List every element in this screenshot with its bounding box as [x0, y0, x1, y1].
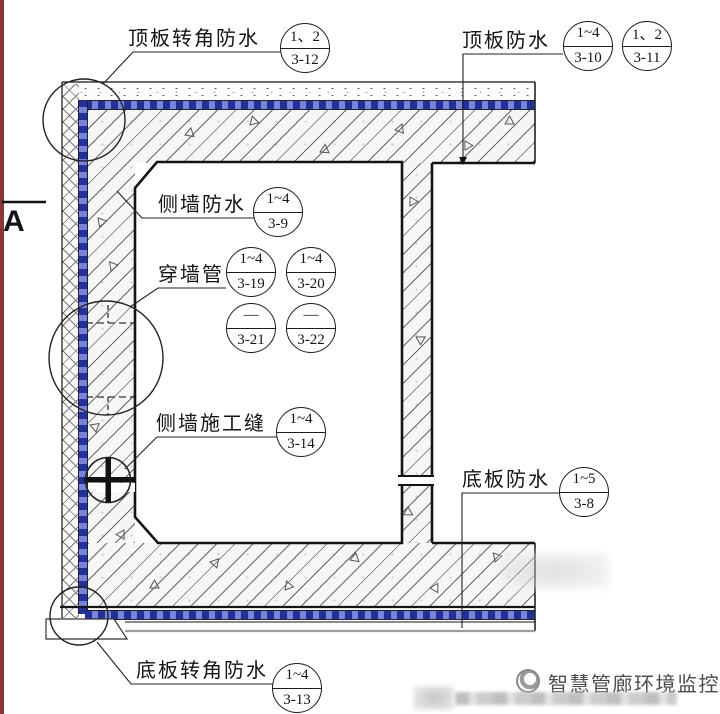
label-through-wall-pipe: 穿墙管: [158, 263, 224, 287]
left-edge-red-strip: [0, 0, 4, 714]
label-floor-waterproofing: 底板防水: [462, 468, 550, 492]
left-wall-concrete: [88, 110, 135, 607]
callout-3-11: 1、2 3-11: [622, 21, 672, 71]
callout-3-9: 1~4 3-9: [253, 187, 303, 237]
callout-3-10: 1~4 3-10: [563, 21, 613, 71]
label-side-wall-waterproofing: 侧墙防水: [158, 193, 246, 217]
waterproofing-detail-drawing: 顶板转角防水 顶板防水 侧墙防水 穿墙管 侧墙施工缝 底板防水 底板转角防水 1…: [0, 0, 720, 714]
callout-3-22: — 3-22: [286, 303, 336, 353]
wall-protection-board: [62, 84, 79, 618]
callout-3-14: 1~4 3-14: [276, 407, 326, 457]
blurred-watermark-line: [455, 692, 677, 705]
top-protection-layer: [66, 84, 535, 100]
label-roof-waterproofing: 顶板防水: [462, 29, 550, 53]
top-slab-concrete: [88, 110, 535, 163]
callout-3-21: — 3-21: [226, 303, 276, 353]
callout-3-19: 1~4 3-19: [226, 247, 276, 297]
wall-membrane-blue: [78, 100, 88, 614]
label-floor-corner-waterproofing: 底板转角防水: [136, 659, 268, 683]
callout-3-13: 1~4 3-13: [272, 663, 322, 713]
callout-3-12: 1、2 3-12: [280, 23, 330, 73]
watermark-logo-icon: [516, 669, 540, 693]
middle-wall-concrete: [402, 163, 432, 543]
label-roof-corner-waterproofing: 顶板转角防水: [128, 27, 260, 51]
blurred-watermark-blob: [414, 686, 454, 710]
callout-3-8: 1~5 3-8: [559, 467, 609, 517]
bottom-slab-concrete: [88, 543, 535, 607]
cushion-edge: [46, 619, 127, 639]
aggregate-marks: [88, 115, 514, 593]
roof-membrane-blue: [85, 100, 535, 110]
blurred-smudge: [500, 552, 610, 590]
floor-membrane-blue: [85, 610, 535, 620]
section-marker-a: A: [3, 205, 26, 239]
label-side-wall-joint: 侧墙施工缝: [156, 412, 266, 436]
callout-3-20: 1~4 3-20: [286, 247, 336, 297]
